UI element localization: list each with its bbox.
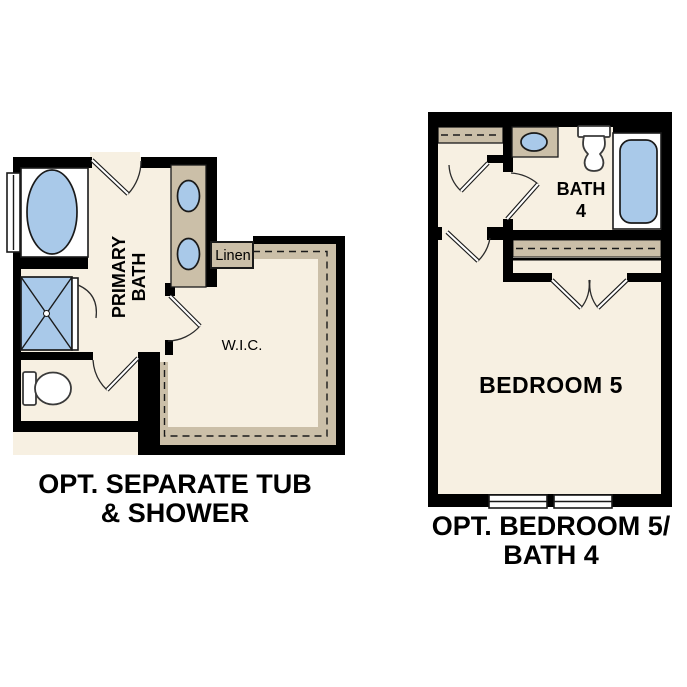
svg-text:BATH: BATH: [129, 253, 149, 302]
bedroom-closet: [513, 240, 661, 261]
right-caption-line2: BATH 4: [503, 540, 599, 570]
floorplan-right: BATH 4 BEDROOM 5 OPT. BEDROOM 5/ BATH 4: [428, 112, 672, 570]
vanity: [512, 127, 558, 157]
floorplan-left: Linen PRIMARY BATH W.I.C. OPT. SEPARATE …: [7, 152, 345, 528]
wic-label: W.I.C.: [222, 337, 263, 354]
window: [554, 495, 612, 508]
sink: [178, 239, 200, 270]
hall-closet: [438, 127, 503, 143]
svg-text:PRIMARY: PRIMARY: [109, 236, 129, 318]
floorplan-svg: Linen PRIMARY BATH W.I.C. OPT. SEPARATE …: [0, 0, 687, 687]
linen-label: Linen: [215, 248, 250, 264]
shower-door: [72, 278, 78, 350]
bathtub: [613, 133, 661, 229]
left-caption-line1: OPT. SEPARATE TUB: [38, 469, 312, 499]
linen-cabinet: Linen: [211, 242, 253, 268]
garden-tub: [21, 168, 88, 257]
left-caption-line2: & SHOWER: [101, 498, 250, 528]
bath4-label-line1: BATH: [557, 179, 606, 199]
bedroom5-label: BEDROOM 5: [479, 372, 623, 398]
right-caption-line1: OPT. BEDROOM 5/: [432, 511, 671, 541]
floorplan-image: Linen PRIMARY BATH W.I.C. OPT. SEPARATE …: [0, 0, 687, 687]
bath4-label-line2: 4: [576, 201, 586, 221]
toilet: [23, 372, 71, 405]
sink: [521, 133, 547, 151]
window: [489, 495, 547, 508]
double-vanity: [171, 165, 206, 287]
sink: [178, 181, 200, 212]
window: [7, 173, 20, 252]
left-entry-opening-floor: [90, 152, 140, 159]
